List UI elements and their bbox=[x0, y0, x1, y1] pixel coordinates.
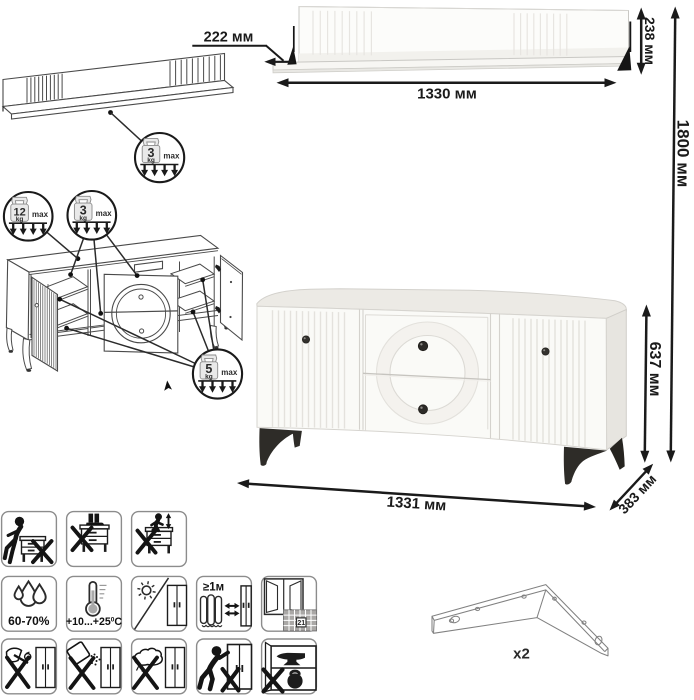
svg-text:kg: kg bbox=[16, 216, 24, 223]
svg-text:1330 мм: 1330 мм bbox=[417, 86, 477, 103]
svg-text:60-70%: 60-70% bbox=[8, 614, 50, 628]
svg-text:1800 мм: 1800 мм bbox=[674, 120, 693, 188]
svg-text:max: max bbox=[96, 209, 113, 218]
svg-text:1331 мм: 1331 мм bbox=[386, 494, 447, 515]
svg-text:383 мм: 383 мм bbox=[615, 471, 659, 517]
svg-text:≥1м: ≥1м bbox=[203, 581, 224, 593]
svg-text:max: max bbox=[32, 210, 49, 219]
svg-text:kg: kg bbox=[79, 215, 87, 222]
svg-text:238 мм: 238 мм bbox=[642, 17, 658, 65]
svg-text:kg: kg bbox=[147, 157, 155, 164]
svg-text:kg: kg bbox=[205, 374, 213, 381]
svg-text:637 мм: 637 мм bbox=[646, 342, 663, 397]
svg-text:max: max bbox=[163, 151, 180, 160]
svg-text:max: max bbox=[221, 368, 238, 377]
svg-text:222 мм: 222 мм bbox=[204, 30, 254, 46]
svg-text:21: 21 bbox=[297, 620, 305, 627]
svg-text:x2: x2 bbox=[513, 646, 530, 663]
svg-text:+10...+250С: +10...+250С bbox=[66, 616, 122, 628]
